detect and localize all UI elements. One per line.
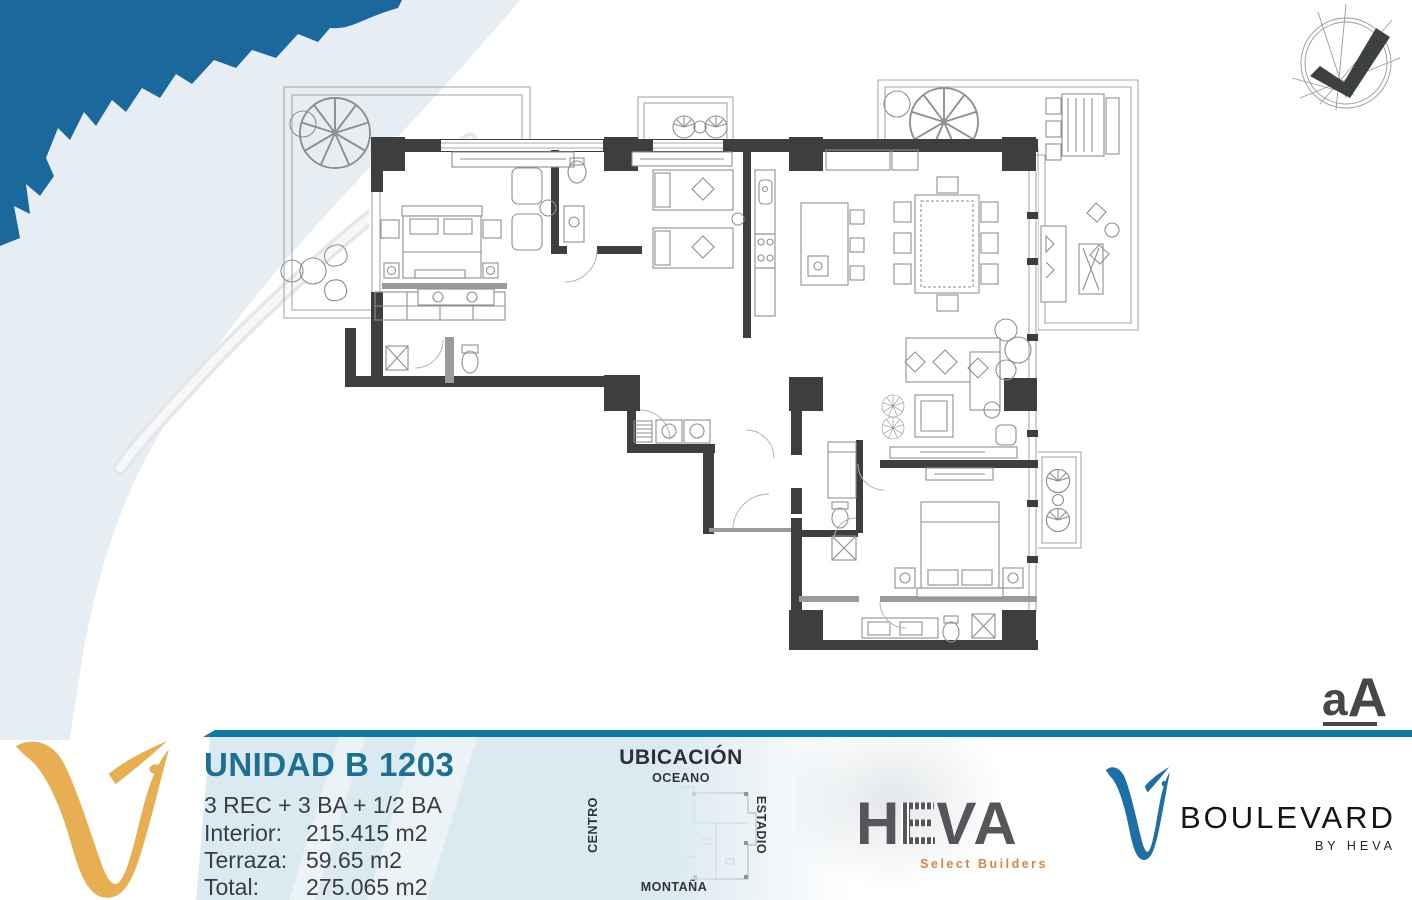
divider-line	[203, 730, 1412, 737]
boulevard-byline: BY HEVA	[1178, 839, 1396, 853]
heva-tagline: Select Builders	[856, 857, 1048, 871]
spec-interior: Interior: 215.415 m2	[204, 821, 514, 846]
architect-mark-underline	[1323, 722, 1377, 726]
spec-total: Total: 275.065 m2	[204, 875, 514, 900]
boulevard-logo-text: BOULEVARD	[1180, 800, 1396, 836]
spec-terraza: Terraza: 59.65 m2	[204, 848, 514, 873]
unit-info: UNIDAD B 1203 3 REC + 3 BA + 1/2 BA Inte…	[204, 746, 514, 900]
label-centro: CENTRO	[586, 780, 600, 870]
gold-v-brush	[16, 741, 169, 898]
heva-logo: HEVA Select Builders	[856, 794, 1048, 871]
floor-plan	[281, 80, 1138, 650]
label-montana: MONTAÑA	[585, 880, 763, 894]
v-compass-logo	[1292, 4, 1400, 110]
architect-mark: aA	[1322, 676, 1387, 719]
boulevard-v-brush	[1106, 767, 1170, 860]
floorplan-sheet: UNIDAD B 1203 3 REC + 3 BA + 1/2 BA Inte…	[0, 0, 1412, 900]
unit-config: 3 REC + 3 BA + 1/2 BA	[204, 792, 514, 819]
ubicacion-title: UBICACIÓN	[592, 746, 770, 770]
label-oceano: OCEANO	[592, 771, 770, 785]
label-estadio: ESTADIO	[754, 780, 768, 870]
unit-title: UNIDAD B 1203	[204, 746, 514, 784]
